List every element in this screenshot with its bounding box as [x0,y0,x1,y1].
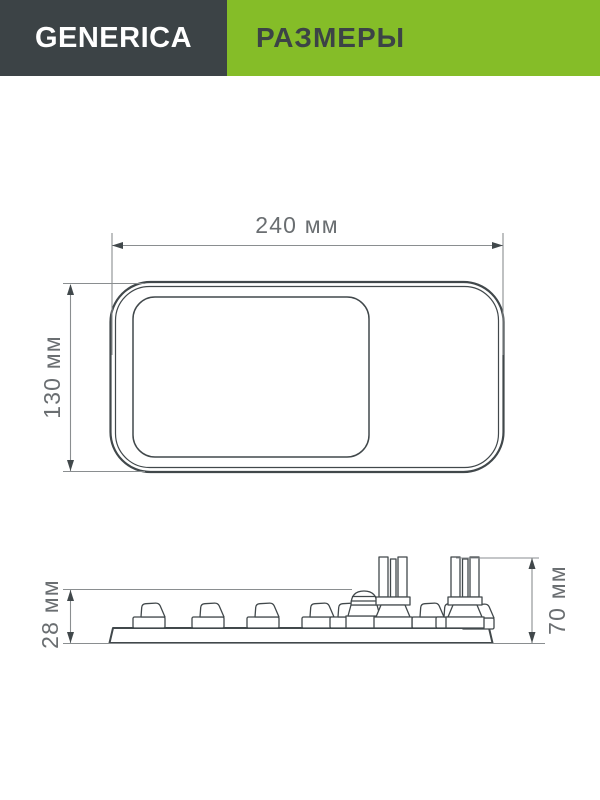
top-view-drawing [111,282,504,472]
side-view-drawing [110,557,495,643]
total-height-label: 70 мм [544,565,570,635]
brand-logo-text: GENERICA [35,22,192,55]
page-title-bar: РАЗМЕРЫ [227,0,600,76]
base-plate [110,628,493,643]
page-title: РАЗМЕРЫ [227,22,405,54]
header: GENERICA РАЗМЕРЫ [0,0,600,76]
page: 240 мм 130 мм [0,0,600,800]
dimensions-diagram: 240 мм 130 мм [0,0,600,800]
brand-logo-block: GENERICA [0,0,227,76]
terminal-post-right [446,557,484,628]
height-dimension-label: 130 мм [39,335,65,419]
profile-height-label: 28 мм [37,579,63,649]
width-dimension-label: 240 мм [255,212,339,238]
terminal-post-left [374,557,412,628]
